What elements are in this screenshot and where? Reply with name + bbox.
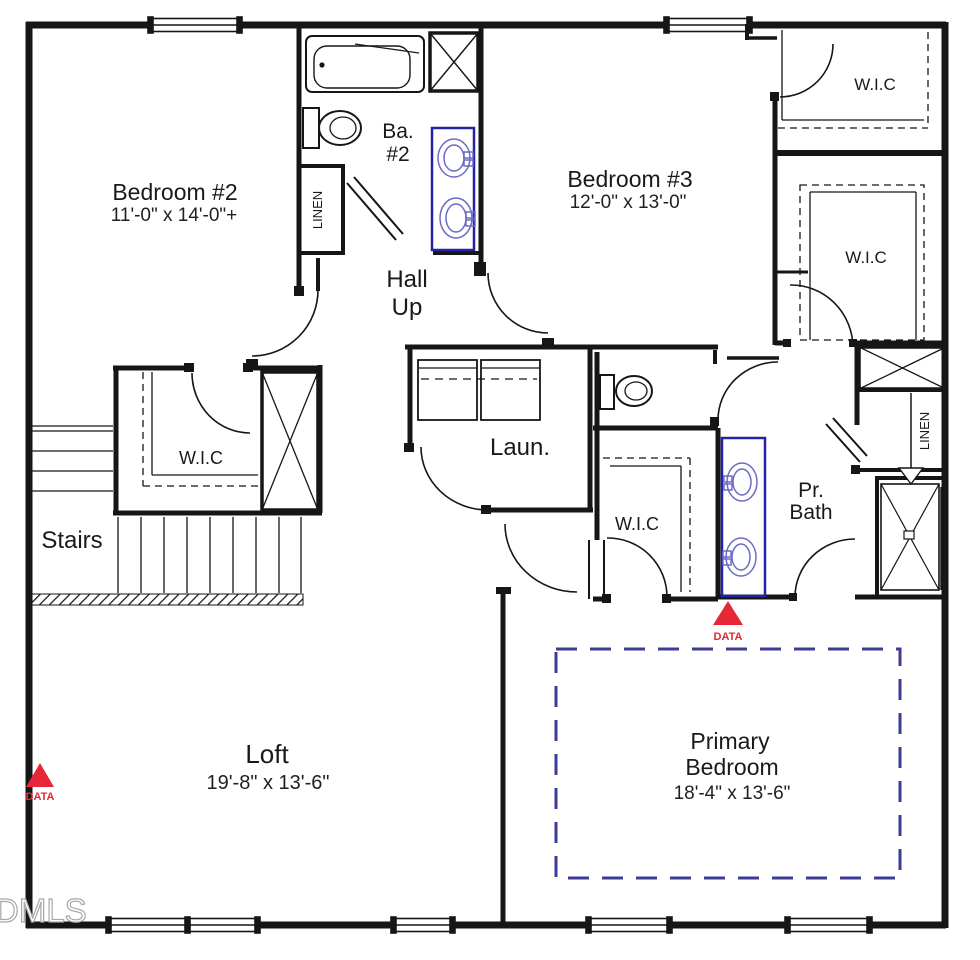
wic-left-door-arc [192, 373, 250, 433]
bath2-label-line1: Ba. [382, 120, 414, 143]
stairs-label: Stairs [41, 527, 102, 554]
primary-bath-door-arc [795, 539, 855, 597]
primary-label-line2: Bedroom [685, 754, 778, 780]
bathtub-icon [306, 36, 424, 92]
window-icon [586, 917, 672, 933]
wic-center-label: W.I.C [615, 514, 659, 534]
toilet-icon [600, 375, 652, 409]
data-marker-label: DATA [26, 791, 55, 803]
window-icon [664, 17, 752, 33]
window-icon [785, 917, 872, 933]
bedroom3-label: Bedroom #3 [567, 166, 692, 192]
prbath-label-line1: Pr. [798, 479, 824, 502]
wic-left-label: W.I.C [179, 448, 223, 468]
bedroom2-dims: 11'-0" x 14'-0"+ [111, 205, 238, 226]
linen2-door-leaf [826, 418, 867, 462]
laundry-label: Laun. [490, 434, 550, 461]
linen2-label: LINEN [917, 412, 932, 450]
stairs-hatch-strip [30, 594, 303, 605]
loft-label: Loft [245, 739, 289, 769]
bedroom2-door-arc [252, 290, 318, 356]
window-icon [391, 917, 455, 933]
bedroom3-door-arc [488, 273, 548, 333]
loft-dims: 19'-8" x 13'-6" [206, 772, 329, 794]
primary-dims: 18'-4" x 13'-6" [674, 783, 791, 804]
wic-center-door-arc [607, 538, 667, 597]
sink-icon [438, 139, 475, 238]
toilet-icon [303, 108, 361, 148]
floor-plan: DATA DATA Bedroom #2 11'-0" x 14'-0"+ Be… [0, 0, 980, 960]
data-marker: DATA [713, 601, 743, 643]
shower-icon [881, 468, 945, 590]
sink-icon [723, 463, 757, 576]
watermark: DMLS [0, 892, 87, 929]
bath-vestibule-door-arc [718, 362, 778, 420]
vanity-primary [722, 438, 765, 596]
primary-label-line1: Primary [690, 728, 770, 754]
wic-right-label: W.I.C [845, 248, 887, 267]
loft-door-arc [505, 524, 577, 592]
window-icon [148, 17, 242, 33]
linen1-label: LINEN [310, 191, 325, 229]
vanity-bath2 [432, 128, 475, 250]
window-icon [185, 917, 260, 933]
wic-top-right-label: W.I.C [854, 75, 896, 94]
data-marker-label: DATA [714, 631, 743, 643]
closet-xbox-icon [430, 33, 478, 91]
prbath-label-line2: Bath [789, 501, 832, 524]
hall-label-line1: Hall [386, 266, 427, 293]
hall-label-line2: Up [392, 294, 423, 321]
bedroom3-dims: 12'-0" x 13'-0" [570, 192, 687, 213]
washer-dryer-icons [418, 360, 540, 420]
floor-plan-page: DATA DATA Bedroom #2 11'-0" x 14'-0"+ Be… [0, 0, 980, 960]
bath2-label-line2: #2 [386, 143, 409, 166]
bedroom2-label: Bedroom #2 [112, 179, 237, 205]
closet-xbox-icon [859, 347, 946, 389]
closet-xbox-icon [262, 372, 318, 510]
window-icon [106, 917, 187, 933]
bath2-door-leaf [347, 177, 403, 240]
wic1-door-arc [780, 44, 833, 97]
laundry-door-arc [421, 447, 488, 510]
